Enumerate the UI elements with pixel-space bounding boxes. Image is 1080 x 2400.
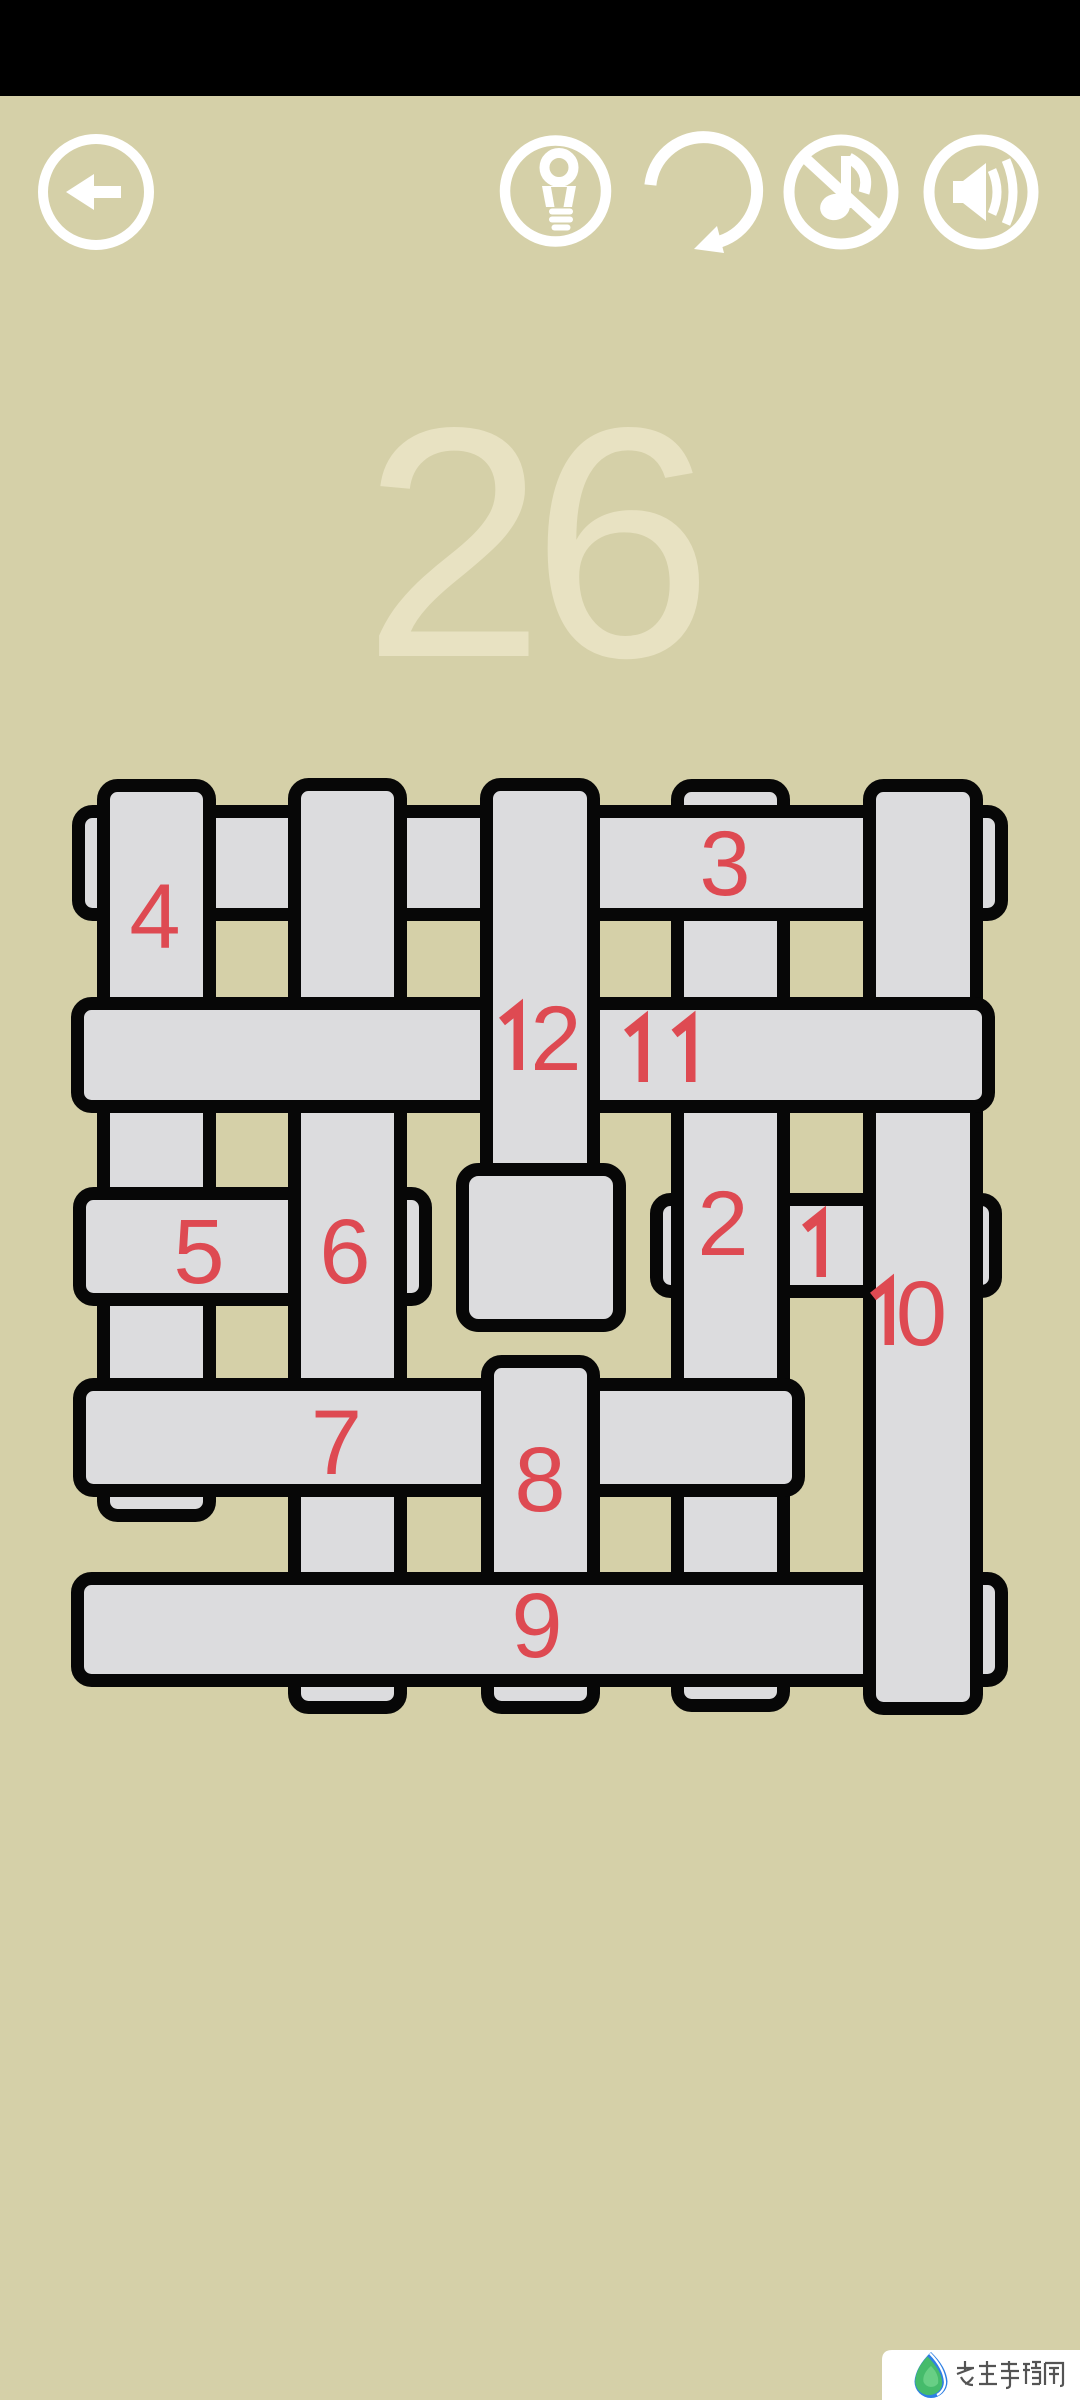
svg-text:9: 9 [511,1575,562,1677]
svg-text:8: 8 [514,1429,565,1531]
svg-text:5: 5 [173,1201,224,1303]
svg-text:7: 7 [311,1392,362,1494]
svg-text:2: 2 [530,988,581,1090]
svg-text:26: 26 [363,359,701,726]
svg-text:3: 3 [699,813,750,915]
svg-text:0: 0 [896,1263,947,1365]
svg-text:4: 4 [129,866,180,968]
svg-text:2: 2 [697,1173,748,1275]
svg-text:6: 6 [319,1201,370,1303]
